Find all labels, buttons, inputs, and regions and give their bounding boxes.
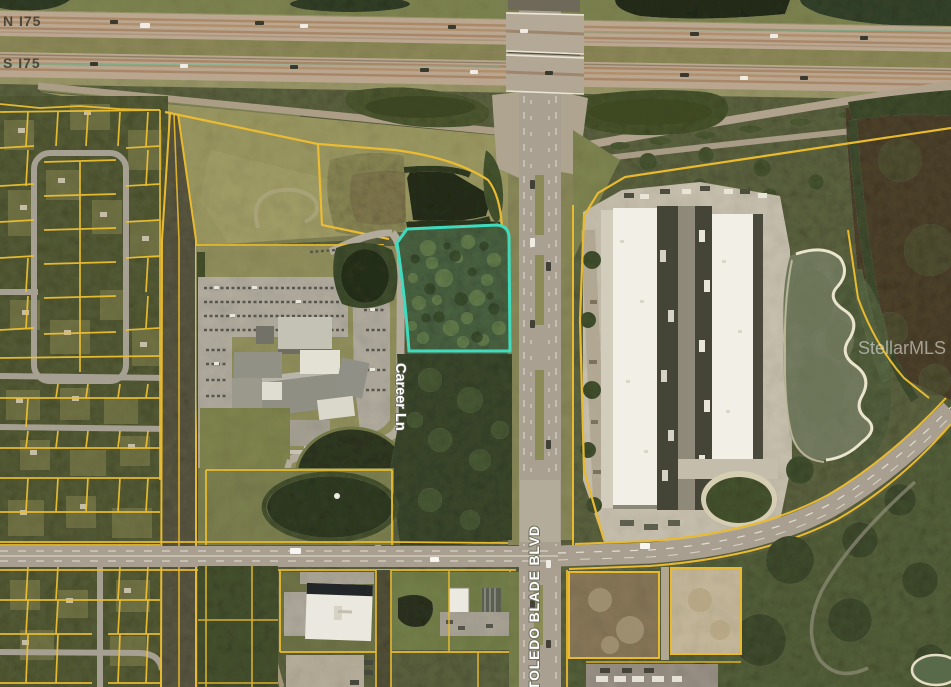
svg-text:S I75: S I75 bbox=[3, 55, 41, 71]
svg-text:Career Ln: Career Ln bbox=[392, 363, 408, 431]
svg-text:TOLEDO BLADE BLVD: TOLEDO BLADE BLVD bbox=[526, 525, 542, 687]
svg-text:StellarMLS: StellarMLS bbox=[858, 338, 946, 358]
svg-text:N I75: N I75 bbox=[3, 13, 41, 29]
